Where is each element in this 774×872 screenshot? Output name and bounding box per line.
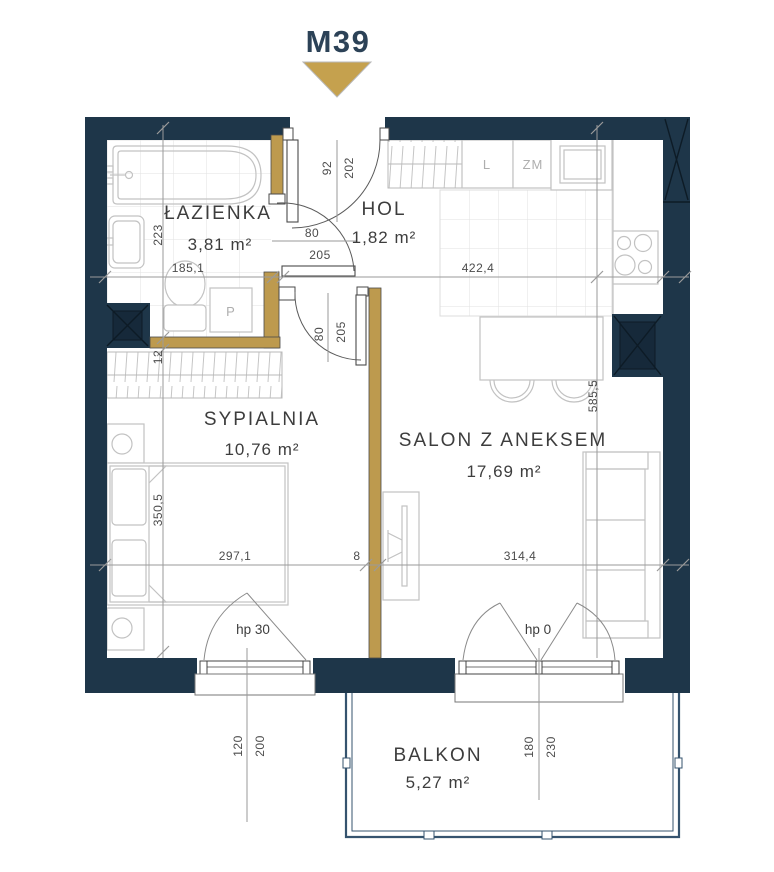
entrance-arrow-icon (303, 62, 371, 97)
room-area-lazienka: 3,81 m² (188, 235, 253, 254)
room-area-salon: 17,69 m² (466, 462, 541, 481)
dim-salon-width: 314,4 (504, 549, 537, 563)
bedroom-door (279, 287, 368, 365)
unit-header: M39 (303, 24, 371, 97)
balcony-railing (343, 693, 682, 839)
dining-chairs (490, 380, 596, 402)
dim-bath-width: 185,1 (172, 261, 205, 275)
dim-window2-h: 230 (544, 736, 558, 758)
washing-machine: P (210, 288, 252, 332)
dim-window1-w: 120 (231, 735, 245, 757)
room-name-hol: HOL (361, 199, 406, 220)
room-area-hol: 1,82 m² (352, 228, 417, 247)
dim-wall-8: 8 (353, 549, 360, 563)
dishwasher-label: ZM (523, 157, 544, 172)
room-area-balkon: 5,27 m² (406, 773, 471, 792)
dim-entry-door-w: 92 (320, 161, 334, 175)
dim-kitchen-width: 422,4 (462, 261, 495, 275)
fridge-label: L (483, 157, 491, 172)
dim-bed-door-w: 80 (312, 327, 326, 341)
room-name-lazienka: ŁAZIENKA (164, 203, 272, 224)
window2-sill-label: hp 0 (525, 622, 551, 637)
dim-bed-width: 297,1 (219, 549, 252, 563)
nightstand-top (107, 424, 144, 463)
room-name-salon: SALON Z ANEKSEM (399, 430, 607, 451)
bed (107, 463, 288, 605)
dim-window2-w: 180 (522, 736, 536, 758)
bedroom-wardrobe (107, 352, 282, 398)
column-left (105, 303, 150, 348)
unit-title: M39 (306, 24, 371, 59)
dim-bath-height: 223 (151, 224, 165, 246)
washer-label: P (226, 304, 236, 319)
dim-entry-door-h: 202 (342, 157, 356, 179)
dim-salon-height: 585,5 (586, 380, 600, 413)
window1-sill-label: hp 30 (236, 622, 270, 637)
dim-bath-door-h: 205 (309, 248, 331, 262)
dining-table (480, 317, 603, 380)
nightstand-bottom (107, 608, 144, 650)
dim-bed-door-h: 205 (334, 321, 348, 343)
column-mid-right (612, 314, 663, 377)
tv-stand (383, 492, 419, 600)
hall-wardrobe (388, 140, 462, 188)
sofa (583, 452, 660, 638)
floor-plan: M39 P (0, 0, 774, 872)
dim-bed-height: 350,5 (151, 494, 165, 527)
floor-plan-page: M39 P (0, 0, 774, 872)
bedroom-window (195, 593, 315, 695)
dim-window1-h: 200 (253, 735, 267, 757)
kitchen-floor-tiles (440, 190, 612, 316)
bathroom-sink (104, 216, 144, 268)
cooktop (613, 231, 658, 284)
dim-bath-door-w: 80 (305, 226, 319, 240)
dim-wall-12: 12 (151, 350, 165, 364)
room-area-sypialnia: 10,76 m² (224, 440, 299, 459)
room-name-sypialnia: SYPIALNIA (204, 409, 320, 430)
room-name-balkon: BALKON (393, 745, 482, 766)
